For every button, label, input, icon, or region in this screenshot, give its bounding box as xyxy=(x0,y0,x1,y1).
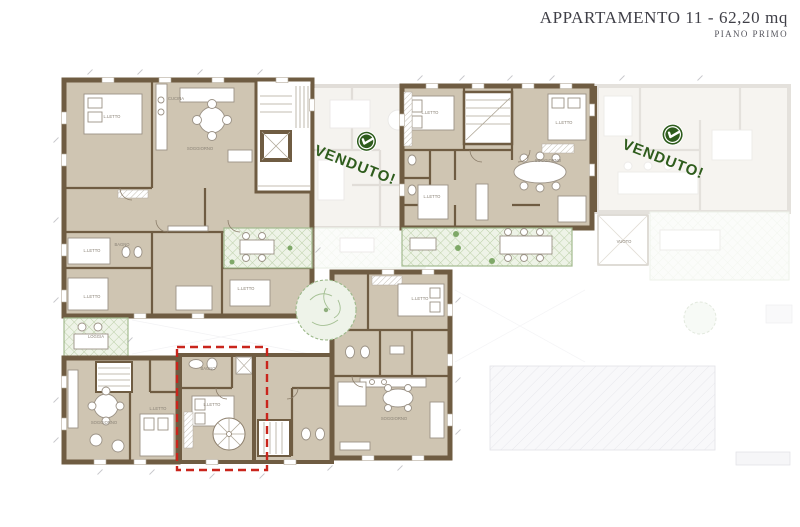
wardrobe xyxy=(404,92,412,146)
table xyxy=(199,107,225,133)
room-label: L.LETTO xyxy=(204,402,222,407)
building-left xyxy=(64,80,312,358)
bed xyxy=(418,185,448,219)
room-label: SOGGIORNO xyxy=(535,158,562,163)
kitchen-counter xyxy=(68,370,78,428)
room-label: L.LETTO xyxy=(104,114,122,119)
dining-table xyxy=(514,161,566,183)
room-label: VUOTO xyxy=(617,239,633,244)
room-label: L.LETTO xyxy=(422,110,440,115)
stairs xyxy=(258,420,290,456)
bed xyxy=(230,280,270,306)
table xyxy=(94,394,118,418)
room-label: L.LETTO xyxy=(424,194,442,199)
plan-header: APPARTAMENTO 11 - 62,20 mq PIANO PRIMO xyxy=(540,8,788,39)
room-label: BAGNO xyxy=(114,242,130,247)
room-label: L.LETTO xyxy=(84,248,102,253)
apartment-11 xyxy=(180,355,254,462)
floorplan-page: APPARTAMENTO 11 - 62,20 mq PIANO PRIMO xyxy=(0,0,800,527)
page-title: APPARTAMENTO 11 - 62,20 mq xyxy=(540,8,788,28)
floorplan-drawing: L.LETTOCUCINASOGGIORNOBAGNOL.LETTOL.LETT… xyxy=(0,0,800,527)
room-label: BAGNO xyxy=(200,366,216,371)
bed xyxy=(338,382,366,406)
sofa xyxy=(430,402,444,438)
room-label: L.LETTO xyxy=(84,294,102,299)
plant-icon xyxy=(489,258,495,264)
tree-icon xyxy=(684,302,716,334)
plant-icon xyxy=(288,246,293,251)
wardrobe xyxy=(118,190,148,198)
stairwell-internal xyxy=(464,92,512,144)
room-label: SOGGIORNO xyxy=(187,146,214,151)
plant-icon xyxy=(455,245,461,251)
plant-icon xyxy=(453,231,459,237)
room-label: LOGGIA xyxy=(88,334,104,339)
sofa xyxy=(180,88,234,102)
plant-icon xyxy=(230,260,235,265)
page-subtitle: PIANO PRIMO xyxy=(540,29,788,39)
tree-icon xyxy=(296,280,356,340)
room-label: SOGGIORNO xyxy=(91,420,118,425)
stairs xyxy=(96,362,132,392)
room-label: L.LETTO xyxy=(238,286,256,291)
stairwell-main xyxy=(256,80,312,192)
room-label: CUCINA xyxy=(168,96,184,101)
kitchen-counter xyxy=(156,84,167,150)
sofa xyxy=(476,184,488,220)
room-label: L.LETTO xyxy=(412,296,430,301)
courtyard-paving xyxy=(490,366,715,450)
room-label: L.LETTO xyxy=(556,120,574,125)
room-label: SOGGIORNO xyxy=(381,416,408,421)
spiral-stair-icon xyxy=(213,418,245,450)
room-label: L.LETTO xyxy=(150,406,168,411)
wardrobe xyxy=(184,412,193,448)
kitchen-counter xyxy=(558,196,586,222)
